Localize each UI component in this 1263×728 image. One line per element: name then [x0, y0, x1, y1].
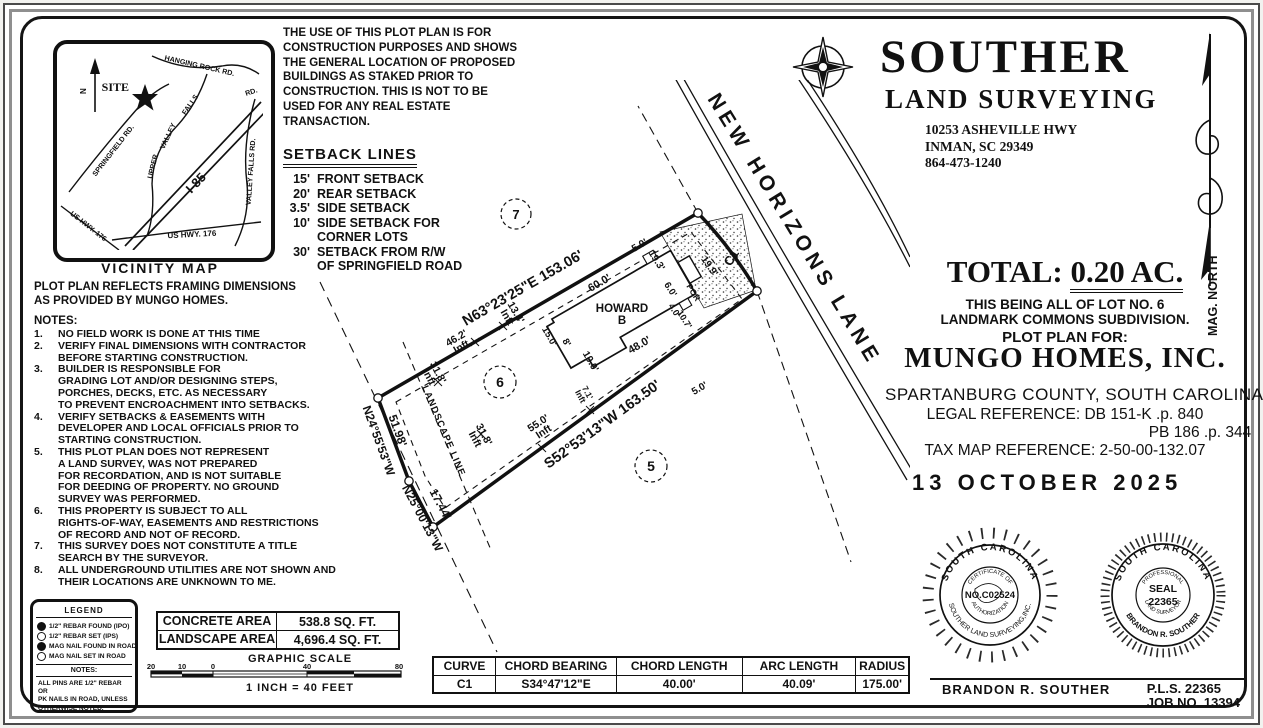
graphic-scale-caption: 1 INCH = 40 FEET	[175, 682, 425, 694]
brand-address: 10253 ASHEVILLE HWY INMAN, SC 29349 864-…	[925, 122, 1077, 172]
legend-item: 1/2" REBAR FOUND (IPO)	[37, 621, 131, 631]
vicinity-north-arrowhead	[90, 58, 100, 74]
house-dim: 5.0'	[630, 237, 650, 255]
pls-number: P.L.S. 22365	[1147, 682, 1240, 696]
house-plan-name: HOWARD	[596, 303, 648, 315]
table-row: C1 S34°47'12"E 40.00' 40.09' 175.00'	[434, 675, 908, 693]
rd-label: RD.	[244, 85, 259, 97]
mag-north-arrow-icon: MAG. NORTH	[1183, 28, 1235, 343]
notes-title: NOTES:	[34, 315, 77, 327]
legend-item: 1/2" REBAR SET (IPS)	[37, 631, 131, 641]
lot-description-line1: THIS BEING ALL OF LOT NO. 6	[885, 297, 1245, 312]
plot-drawing: NEW HORIZONS LANE LANDSCAPE LINE HOWARD …	[295, 80, 910, 665]
surveyor-seals: SOUTH CAROLINA SOUTHER LAND SURVEYING,IN…	[895, 505, 1255, 680]
seal1-number: NO.C02524	[965, 590, 1016, 601]
us176-diag-label: US HWY. 176	[68, 209, 108, 243]
vicinity-map-title: VICINITY MAP	[53, 260, 267, 276]
site-label: SITE	[102, 80, 129, 94]
brand-name: SOUTHER	[880, 30, 1131, 84]
brand-tagline: LAND SURVEYING	[885, 84, 1157, 115]
legend-box: LEGEND 1/2" REBAR FOUND (IPO) 1/2" REBAR…	[30, 599, 138, 713]
rebar-set-icon	[37, 632, 46, 641]
rebar-found-icon	[37, 622, 46, 631]
authorization-seal: SOUTH CAROLINA SOUTHER LAND SURVEYING,IN…	[928, 533, 1052, 657]
house-dim: 48.0'	[626, 334, 653, 357]
landscape-line-label: LANDSCAPE LINE	[419, 384, 467, 478]
total-acreage-value: 0.20 AC.	[1070, 254, 1183, 293]
scale-tick-label: 20	[147, 662, 155, 671]
corner-monument	[694, 209, 702, 217]
road-connector	[147, 184, 153, 236]
rear-bearing-label: S52°53'13"W 163.50'	[541, 377, 663, 472]
lot-number: 7	[512, 207, 519, 222]
county-state: SPARTANBURG COUNTY, SOUTH CAROLINA	[885, 385, 1245, 405]
surveyor-name: BRANDON R. SOUTHER	[930, 682, 1110, 710]
legal-reference-2: PB 186 .p. 344	[885, 424, 1263, 442]
legend-note-text: ALL PINS ARE 1/2" REBAR OR PK NAILS IN R…	[33, 679, 135, 714]
springfield-label: SPRINGFIELD RD.	[90, 123, 136, 178]
upper-label: UPPER	[145, 153, 160, 180]
mag-nail-set-icon	[37, 652, 46, 661]
seal2-license-number: 22365	[1148, 596, 1177, 608]
lot-number: 5	[647, 458, 655, 474]
rw-extension-lower	[757, 291, 851, 562]
mag-nail-found-icon	[37, 642, 46, 651]
segment-dim: 46.2'Inft	[444, 327, 475, 358]
legend-title: LEGEND	[36, 602, 132, 618]
rw-extension-upper	[638, 106, 698, 213]
plan-date: 13 OCTOBER 2025	[912, 470, 1182, 496]
legal-reference: LEGAL REFERENCE: DB 151-K .p. 840	[885, 406, 1245, 424]
seal2-seal-word: SEAL	[1149, 583, 1178, 595]
tax-map-reference: TAX MAP REFERENCE: 2-50-00-132.07	[885, 442, 1245, 460]
house-dim: 5.0'	[690, 380, 710, 398]
lot-number: 6	[496, 374, 504, 390]
signature-block: BRANDON R. SOUTHER P.L.S. 22365 JOB NO. …	[930, 678, 1244, 710]
valley-label: VALLEY	[158, 121, 178, 150]
road-edge-outer-1	[765, 80, 910, 267]
job-number: JOB NO. 13394	[1147, 696, 1240, 710]
total-acreage: TOTAL: 0.20 AC.	[885, 254, 1245, 290]
vicinity-map-drawing: N SITE HANGING ROCK RD. RD. FALLS VALLEY…	[57, 44, 263, 250]
legend-notes-title: NOTES:	[36, 664, 132, 677]
professional-seal: SOUTH CAROLINA BRANDON R. SOUTHER PROFES…	[1105, 537, 1221, 653]
segment-dim: 31.8'Inft	[418, 360, 448, 391]
house-dim: 10.7'	[675, 308, 694, 330]
adjoiner-dashed-line	[320, 282, 497, 652]
corner-monument	[374, 394, 382, 402]
house-plan-variant: B	[618, 315, 626, 327]
scale-tick-label: 0	[211, 662, 215, 671]
vicinity-north-label: N	[79, 88, 88, 94]
us176-horiz-label: US HWY. 176	[167, 229, 217, 241]
client-name: MUNGO HOMES, INC.	[885, 342, 1245, 375]
corner-monument	[753, 287, 761, 295]
falls-label: FALLS	[180, 92, 201, 116]
legend-item: MAG NAIL SET IN ROAD	[37, 651, 131, 661]
lot-description-line2: LANDMARK COMMONS SUBDIVISION.	[885, 312, 1245, 327]
scale-tick-label: 10	[178, 662, 186, 671]
segment-dim: 7.1'Inft	[573, 384, 595, 405]
vicinity-map-box: N SITE HANGING ROCK RD. RD. FALLS VALLEY…	[53, 40, 275, 262]
site-star-icon	[132, 84, 158, 111]
legend-item: MAG NAIL FOUND IN ROAD	[37, 641, 131, 651]
segment-dim: 31.8'Inft	[464, 422, 494, 453]
